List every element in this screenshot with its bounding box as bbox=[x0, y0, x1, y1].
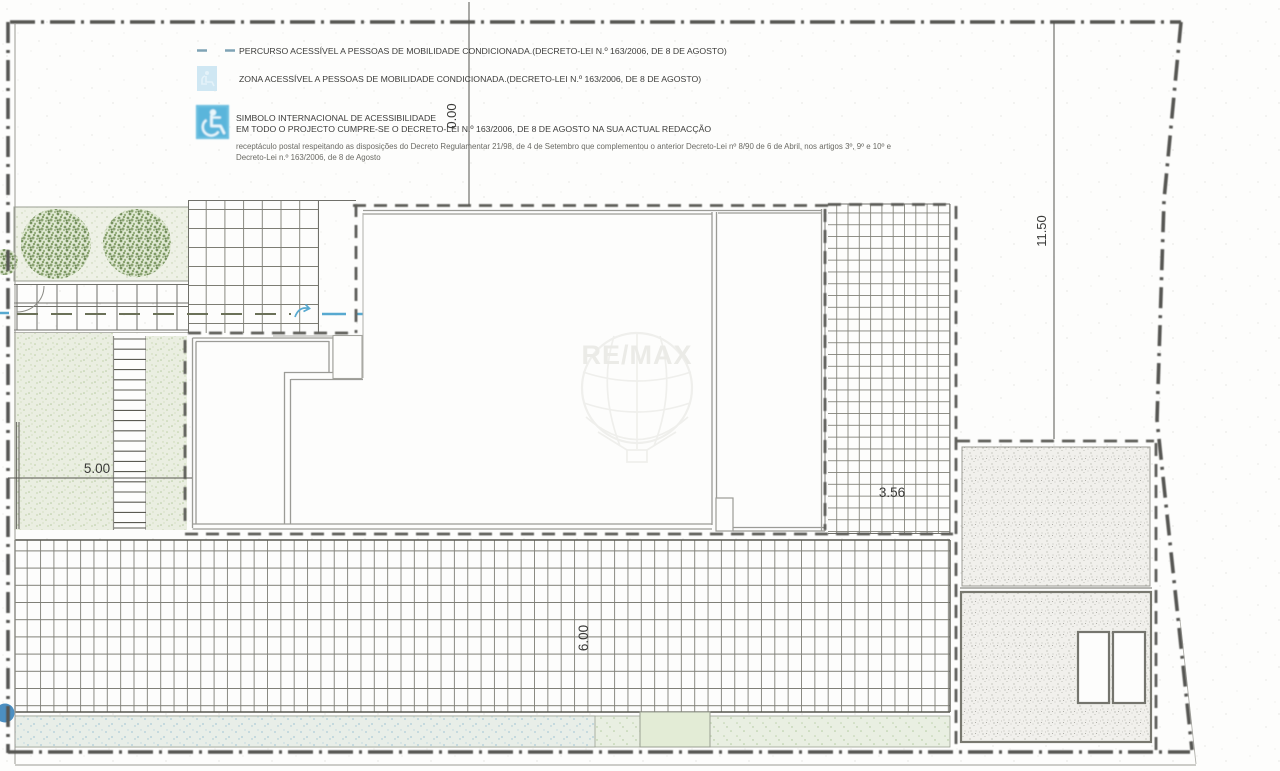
svg-text:PERCURSO ACESSÍVEL A PESSOAS D: PERCURSO ACESSÍVEL A PESSOAS DE MOBILIDA… bbox=[239, 46, 727, 56]
svg-text:11.50: 11.50 bbox=[1034, 215, 1049, 247]
svg-text:Decreto-Lei n.º 163/2006, de 8: Decreto-Lei n.º 163/2006, de 8 de Agosto bbox=[236, 153, 381, 162]
svg-text:ZONA ACESSÍVEL A PESSOAS DE MO: ZONA ACESSÍVEL A PESSOAS DE MOBILIDADE C… bbox=[239, 74, 701, 84]
svg-text:receptáculo postal respeitando: receptáculo postal respeitando as dispos… bbox=[236, 142, 892, 151]
svg-text:5.00: 5.00 bbox=[84, 461, 110, 476]
svg-text:3.56: 3.56 bbox=[879, 485, 905, 500]
svg-text:SIMBOLO INTERNACIONAL DE ACESS: SIMBOLO INTERNACIONAL DE ACESSIBILIDADE bbox=[236, 113, 436, 123]
svg-text:RE/MAX: RE/MAX bbox=[581, 340, 692, 370]
svg-text:EM TODO O PROJECTO CUMPRE-SE O: EM TODO O PROJECTO CUMPRE-SE O DECRETO-L… bbox=[236, 124, 711, 134]
svg-text:6.00: 6.00 bbox=[576, 625, 591, 651]
